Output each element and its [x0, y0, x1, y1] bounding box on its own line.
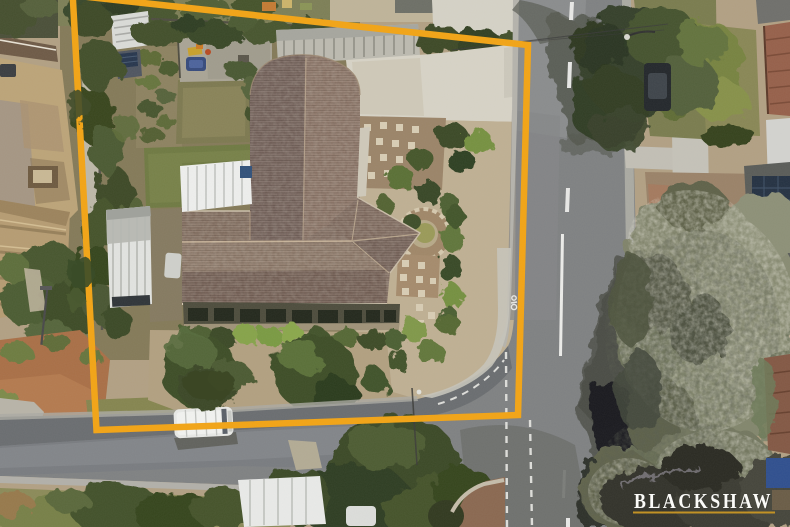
svg-text:BLACKSHAW: BLACKSHAW [634, 489, 773, 513]
